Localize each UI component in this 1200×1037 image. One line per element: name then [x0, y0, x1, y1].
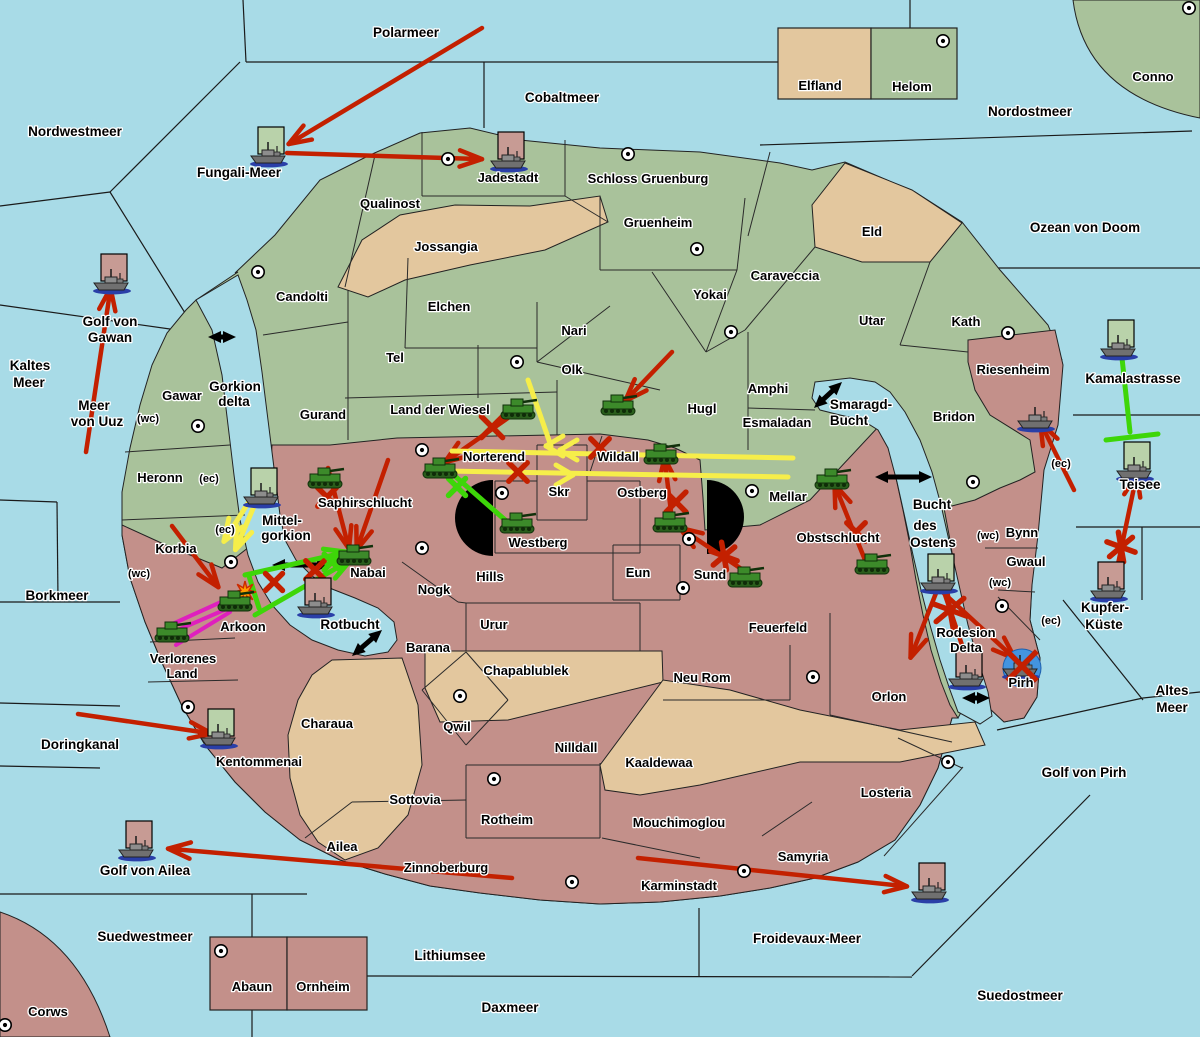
water-label-smaragd: Smaragd- [830, 397, 892, 412]
water-label-mittel: Mittel- [262, 513, 302, 528]
city-marker [1183, 2, 1195, 14]
region-label-schloss-gruenburg: Schloss Gruenburg [588, 171, 709, 186]
water-label-bucht: Bucht [913, 497, 952, 512]
region-label-qwil: Qwil [443, 719, 470, 734]
region-label-mouchimoglou: Mouchimoglou [633, 815, 725, 830]
region-label-sottovia: Sottovia [389, 792, 441, 807]
sea-label-daxmeer: Daxmeer [481, 1000, 539, 1015]
region-label-charaua: Charaua [301, 716, 354, 731]
region-label-conno: Conno [1132, 69, 1173, 84]
region-label-gurand: Gurand [300, 407, 346, 422]
sea-label-suedostmeer: Suedostmeer [977, 988, 1063, 1003]
city-marker [622, 148, 634, 160]
sea-label-meer: Meer [13, 375, 45, 390]
region-label-sund: Sund [694, 567, 727, 582]
region-label-kath: Kath [952, 314, 981, 329]
sea-label-fungali-meer: Fungali-Meer [197, 165, 282, 180]
sea-label-nordostmeer: Nordostmeer [988, 104, 1073, 119]
sea-label-polarmeer: Polarmeer [373, 25, 440, 40]
region-label-heronn: Heronn [137, 470, 183, 485]
sea-label-gawan: Gawan [88, 330, 132, 345]
sea-label-cobaltmeer: Cobaltmeer [525, 90, 600, 105]
sea-label-ozean-von-doom: Ozean von Doom [1030, 220, 1140, 235]
city-marker [996, 600, 1008, 612]
city-marker [683, 533, 695, 545]
sea-label-suedwestmeer: Suedwestmeer [97, 929, 193, 944]
city-marker [252, 266, 264, 278]
annotation-ec: (ec) [215, 524, 235, 536]
city-marker [0, 1019, 11, 1031]
region-label-corws: Corws [28, 1004, 68, 1019]
region-label-ailea: Ailea [326, 839, 358, 854]
annotation-wc: (wc) [137, 413, 159, 425]
region-label-rodesion: Rodesion [936, 625, 995, 640]
region-label-wildall: Wildall [597, 449, 639, 464]
region-label-zinnoberburg: Zinnoberburg [404, 860, 489, 875]
sea-label-meer: Meer [1156, 700, 1188, 715]
region-label-riesenheim: Riesenheim [977, 362, 1050, 377]
region-ornheim[interactable] [287, 937, 367, 1010]
sea-label-golf-von-pirh: Golf von Pirh [1042, 765, 1127, 780]
city-marker [942, 756, 954, 768]
annotation-wc: (wc) [128, 568, 150, 580]
annotation-wc: (wc) [989, 577, 1011, 589]
city-marker [967, 476, 979, 488]
region-label-neu-rom: Neu Rom [673, 670, 730, 685]
region-label-esmaladan: Esmaladan [743, 415, 812, 430]
region-label-utar: Utar [859, 313, 885, 328]
region-label-candolti: Candolti [276, 289, 328, 304]
region-label-jadestadt: Jadestadt [478, 170, 539, 185]
region-label-arkoon: Arkoon [220, 619, 266, 634]
region-label-feuerfeld: Feuerfeld [749, 620, 808, 635]
city-marker [225, 556, 237, 568]
water-label-delta: delta [218, 394, 250, 409]
region-label-korbia: Korbia [155, 541, 197, 556]
region-label-ornheim: Ornheim [296, 979, 349, 994]
region-label-nari: Nari [561, 323, 586, 338]
city-marker [746, 485, 758, 497]
region-label-amphi: Amphi [748, 381, 788, 396]
region-label-verlorenes: Verlorenes [150, 651, 217, 666]
sea-label-borkmeer: Borkmeer [25, 588, 89, 603]
city-marker [454, 690, 466, 702]
water-label-rotbucht: Rotbucht [320, 617, 380, 632]
region-label-orlon: Orlon [872, 689, 907, 704]
region-label-chapablublek: Chapablublek [483, 663, 569, 678]
region-label-bridon: Bridon [933, 409, 975, 424]
region-label-elchen: Elchen [428, 299, 471, 314]
region-label-caraveccia: Caraveccia [751, 268, 820, 283]
region-label-kaaldewaa: Kaaldewaa [625, 755, 693, 770]
city-marker [182, 701, 194, 713]
region-label-gwaul: Gwaul [1006, 554, 1045, 569]
annotation-wc: (wc) [977, 530, 999, 542]
region-label-barana: Barana [406, 640, 451, 655]
region-label-skr: Skr [549, 484, 570, 499]
water-label-gorkion: Gorkion [209, 379, 261, 394]
water-label-des: des [913, 518, 936, 533]
sea-label-doringkanal: Doringkanal [41, 737, 119, 752]
city-marker [442, 153, 454, 165]
city-marker [1002, 327, 1014, 339]
strategy-map-svg: PolarmeerNordwestmeerCobaltmeerNordostme… [0, 0, 1200, 1037]
region-label-elfland: Elfland [798, 78, 841, 93]
region-label-eun: Eun [626, 565, 651, 580]
region-label-jossangia: Jossangia [414, 239, 478, 254]
region-label-losteria: Losteria [861, 785, 912, 800]
city-marker [416, 542, 428, 554]
region-label-bynn: Bynn [1006, 525, 1039, 540]
map-stage: PolarmeerNordwestmeerCobaltmeerNordostme… [0, 0, 1200, 1037]
region-label-obstschlucht: Obstschlucht [796, 530, 880, 545]
region-label-rotheim: Rotheim [481, 812, 533, 827]
sea-label-golf-von: Golf von [83, 314, 138, 329]
region-label-abaun: Abaun [232, 979, 273, 994]
sea-label-teisee: Teisee [1119, 477, 1161, 492]
sea-label-von-uuz: von Uuz [71, 414, 124, 429]
annotation-ec: (ec) [1051, 458, 1071, 470]
city-marker [566, 876, 578, 888]
region-label-yokai: Yokai [693, 287, 727, 302]
city-marker [192, 420, 204, 432]
sea-label-k-ste: Küste [1085, 617, 1123, 632]
region-label-ostberg: Ostberg [617, 485, 667, 500]
region-label-hugl: Hugl [688, 401, 717, 416]
water-label-ostens: Ostens [910, 535, 956, 550]
region-label-delta: Delta [950, 640, 983, 655]
region-label-karminstadt: Karminstadt [641, 878, 718, 893]
sea-label-nordwestmeer: Nordwestmeer [28, 124, 123, 139]
sea-label-kupfer: Kupfer- [1081, 600, 1129, 615]
region-label-tel: Tel [386, 350, 404, 365]
region-label-helom: Helom [892, 79, 932, 94]
region-label-mellar: Mellar [769, 489, 807, 504]
city-marker [677, 582, 689, 594]
city-marker [937, 35, 949, 47]
annotation-ec: (ec) [1041, 615, 1061, 627]
city-marker [416, 444, 428, 456]
region-label-hills: Hills [476, 569, 503, 584]
sea-label-kamalastrasse: Kamalastrasse [1085, 371, 1181, 386]
region-label-land-der-wiesel: Land der Wiesel [390, 402, 490, 417]
city-marker [725, 326, 737, 338]
region-label-saphirschlucht: Saphirschlucht [318, 495, 413, 510]
region-label-gruenheim: Gruenheim [624, 215, 693, 230]
sea-label-altes: Altes [1155, 683, 1188, 698]
region-label-nilldall: Nilldall [555, 740, 598, 755]
city-marker [488, 773, 500, 785]
region-label-nogk: Nogk [418, 582, 451, 597]
water-label-bucht: Bucht [830, 413, 869, 428]
region-label-norterend: Norterend [463, 449, 525, 464]
water-label-gorkion: gorkion [261, 528, 311, 543]
city-marker [807, 671, 819, 683]
region-label-qualinost: Qualinost [360, 196, 421, 211]
city-marker [215, 945, 227, 957]
annotation-ec: (ec) [199, 473, 219, 485]
sea-label-meer: Meer [78, 398, 110, 413]
region-label-eld: Eld [862, 224, 882, 239]
region-label-nabai: Nabai [350, 565, 385, 580]
city-marker [738, 865, 750, 877]
sea-label-kaltes: Kaltes [10, 358, 51, 373]
city-marker [511, 356, 523, 368]
city-marker [496, 487, 508, 499]
region-label-gawar: Gawar [162, 388, 202, 403]
sea-label-golf-von-ailea: Golf von Ailea [100, 863, 191, 878]
sea-label-lithiumsee: Lithiumsee [414, 948, 486, 963]
region-label-olk: Olk [562, 362, 584, 377]
sea-label-froidevaux-meer: Froidevaux-Meer [753, 931, 862, 946]
region-label-urur: Urur [480, 617, 507, 632]
city-marker [691, 243, 703, 255]
region-label-pirh: Pirh [1008, 675, 1033, 690]
region-label-kentommenai: Kentommenai [216, 754, 302, 769]
region-label-samyria: Samyria [778, 849, 829, 864]
region-label-land: Land [166, 666, 197, 681]
region-label-westberg: Westberg [509, 535, 568, 550]
